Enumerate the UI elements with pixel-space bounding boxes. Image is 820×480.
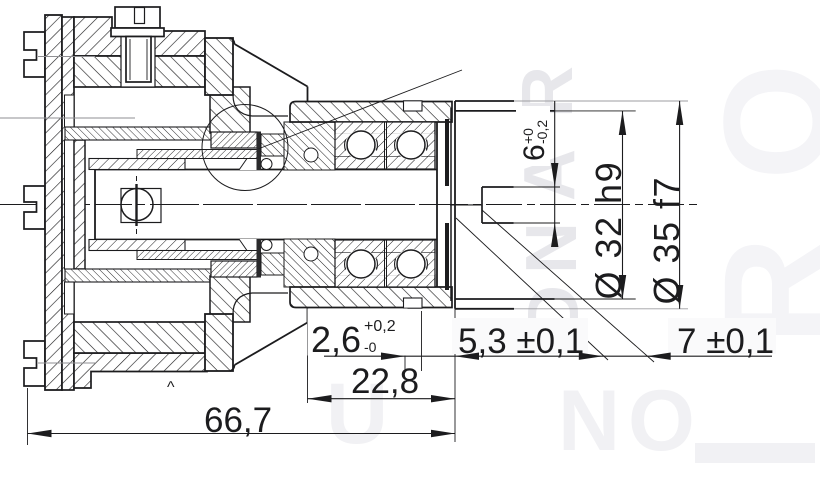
svg-text:N: N bbox=[512, 222, 592, 274]
svg-text:22,8: 22,8 bbox=[351, 362, 419, 401]
svg-text:-0,2: -0,2 bbox=[534, 120, 550, 144]
svg-text:+0,2: +0,2 bbox=[364, 318, 396, 335]
svg-text:N: N bbox=[558, 373, 620, 469]
svg-text:6: 6 bbox=[518, 144, 551, 161]
svg-text:2,6: 2,6 bbox=[311, 319, 361, 360]
svg-text:66,7: 66,7 bbox=[204, 401, 272, 440]
svg-text:^: ^ bbox=[167, 379, 175, 396]
svg-text:7 ±0,1: 7 ±0,1 bbox=[677, 322, 774, 361]
svg-text:-0: -0 bbox=[364, 339, 377, 355]
svg-text:5,3 ±0,1: 5,3 ±0,1 bbox=[458, 322, 584, 361]
svg-text:Ø 35 f7: Ø 35 f7 bbox=[646, 176, 687, 305]
svg-text:O: O bbox=[692, 63, 820, 180]
svg-text:Ø 32 h9: Ø 32 h9 bbox=[588, 161, 629, 300]
svg-text:O: O bbox=[628, 373, 695, 469]
